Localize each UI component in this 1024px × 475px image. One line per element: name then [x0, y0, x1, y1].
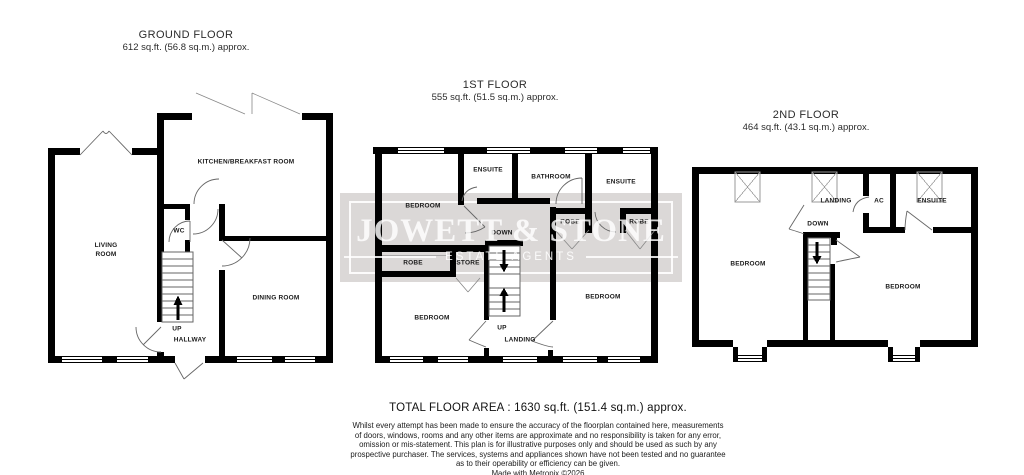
room-label-dining-room: DINING ROOM: [253, 295, 300, 302]
room-label-bedroom: BEDROOM: [885, 284, 920, 291]
floorplan-canvas: JOWETT & STONE ESTATE AGENTS GROUND FLOO…: [0, 0, 1024, 475]
staircase-down: [808, 238, 830, 300]
second-floor-title: 2ND FLOOR 464 sq.ft. (43.1 sq.m.) approx…: [743, 109, 870, 133]
first-floor-plan: [370, 140, 665, 370]
total-floor-area: TOTAL FLOOR AREA : 1630 sq.ft. (151.4 sq…: [350, 402, 725, 414]
room-label-robe: ROBE: [560, 219, 580, 226]
room-label-ensuite: ENSUITE: [473, 167, 503, 174]
room-label-kitchen-breakfast: KITCHEN/BREAKFAST ROOM: [198, 159, 295, 166]
room-label-bedroom: BEDROOM: [585, 294, 620, 301]
stair-label-down: DOWN: [807, 221, 828, 228]
disclaimer: Whilst every attempt has been made to en…: [350, 421, 725, 469]
room-label-bedroom: BEDROOM: [414, 315, 449, 322]
room-label-living-room: LIVING ROOM: [85, 242, 127, 260]
bifold-door-icon: [196, 93, 300, 114]
floor-area: 612 sq.ft. (56.8 sq.m.) approx.: [123, 42, 250, 53]
room-label-hallway: HALLWAY: [174, 337, 207, 344]
disclaimer-line: as to their operability or efficiency ca…: [350, 459, 725, 469]
room-label-ensuite: ENSUITE: [606, 179, 636, 186]
first-floor-title: 1ST FLOOR 555 sq.ft. (51.5 sq.m.) approx…: [432, 79, 559, 103]
room-label-bedroom: BEDROOM: [405, 203, 440, 210]
stair-label-up: UP: [497, 325, 506, 332]
room-label-robe: ROBE: [629, 219, 649, 226]
ground-floor-title: GROUND FLOOR 612 sq.ft. (56.8 sq.m.) app…: [123, 29, 250, 53]
room-label-landing: LANDING: [504, 337, 535, 344]
room-label-bathroom: BATHROOM: [531, 174, 570, 181]
floor-title: 2ND FLOOR: [743, 109, 870, 121]
disclaimer-line: of doors, windows, rooms and any other i…: [350, 431, 725, 441]
room-label-bedroom: BEDROOM: [730, 261, 765, 268]
room-label-store: STORE: [456, 260, 479, 267]
disclaimer-line: Whilst every attempt has been made to en…: [350, 421, 725, 431]
stair-label-down: DOWN: [491, 230, 512, 237]
floor-title: 1ST FLOOR: [432, 79, 559, 91]
staircase-up: [162, 252, 193, 322]
room-label-robe: ROBE: [403, 260, 423, 267]
footer: TOTAL FLOOR AREA : 1630 sq.ft. (151.4 sq…: [350, 402, 725, 475]
floor-area: 555 sq.ft. (51.5 sq.m.) approx.: [432, 92, 559, 103]
disclaimer-line: omission or mis-statement. This plan is …: [350, 440, 725, 450]
stair-label-up: UP: [172, 326, 181, 333]
floor-area: 464 sq.ft. (43.1 sq.m.) approx.: [743, 122, 870, 133]
room-label-wc: WC: [173, 228, 184, 235]
floor-title: GROUND FLOOR: [123, 29, 250, 41]
room-label-landing: LANDING: [820, 198, 851, 205]
disclaimer-line: prospective purchaser. The services, sys…: [350, 450, 725, 460]
room-label-ensuite: ENSUITE: [917, 198, 947, 205]
staircase-up-down: [489, 246, 520, 316]
metropix-credit: Made with Metropix ©2026: [350, 469, 725, 475]
dormer-window-icon: [733, 347, 920, 362]
room-label-ac: AC: [874, 198, 884, 205]
